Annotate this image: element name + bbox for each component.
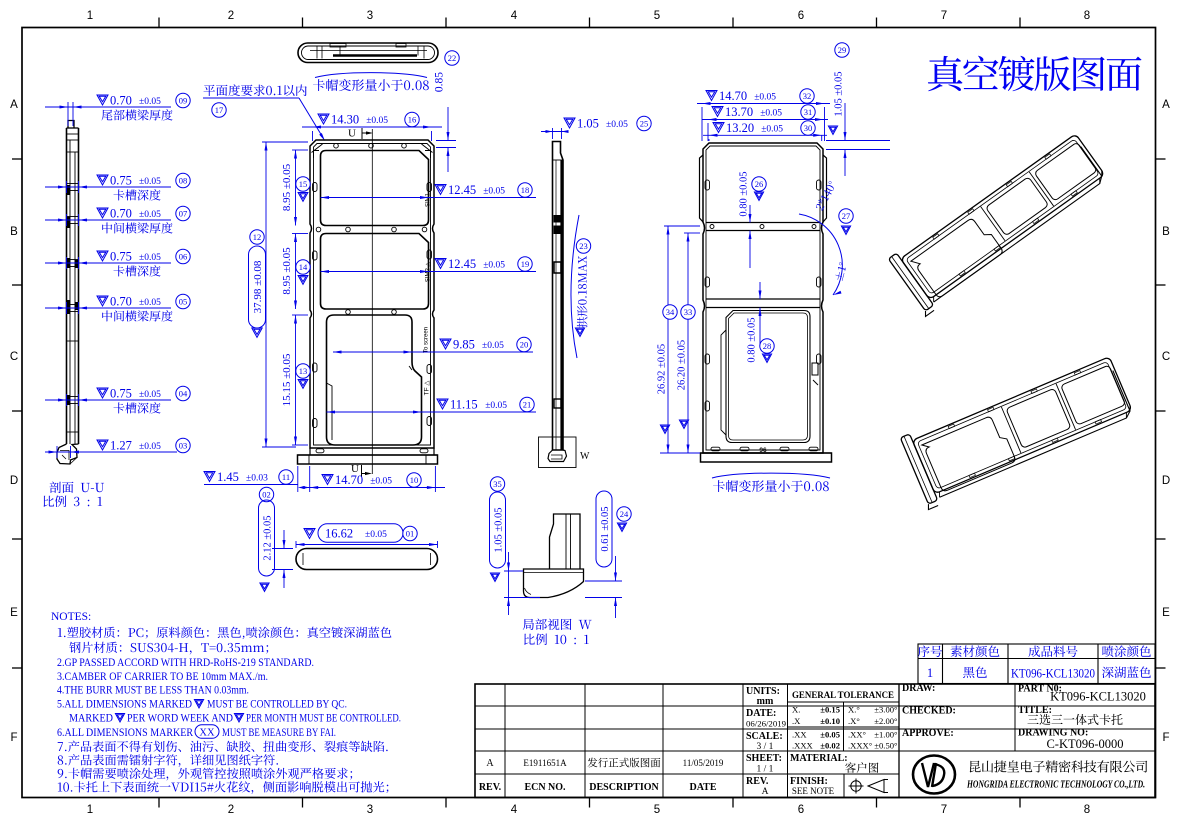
- svg-text:3 / 1: 3 / 1: [757, 742, 774, 752]
- svg-text:4: 4: [511, 804, 518, 816]
- svg-text:±0.05: ±0.05: [139, 298, 161, 308]
- svg-text:±0.10: ±0.10: [820, 716, 840, 726]
- svg-text:±3.00°: ±3.00°: [874, 705, 898, 715]
- svg-text:4: 4: [511, 10, 518, 22]
- svg-text:GENERAL TOLERANCE: GENERAL TOLERANCE: [792, 690, 894, 700]
- svg-text:26.20 ±0.05: 26.20 ±0.05: [677, 340, 688, 390]
- svg-text:08: 08: [179, 175, 188, 185]
- svg-text:14.70: 14.70: [335, 473, 363, 487]
- svg-text:35: 35: [493, 479, 502, 489]
- svg-text:8: 8: [1084, 804, 1090, 816]
- svg-text:1: 1: [927, 666, 933, 680]
- svg-text:±0.03: ±0.03: [246, 474, 268, 484]
- svg-text:21: 21: [523, 399, 532, 409]
- svg-text:.XX°: .XX°: [848, 730, 867, 740]
- svg-text:5.ALL DIMENSIONS MARKED: 5.ALL DIMENSIONS MARKED: [57, 699, 192, 711]
- svg-text:CHECKED:: CHECKED:: [902, 706, 956, 717]
- svg-text:±0.05: ±0.05: [139, 177, 161, 187]
- svg-text:±0.02: ±0.02: [820, 741, 840, 751]
- svg-text:B: B: [10, 226, 18, 238]
- svg-text:REV.: REV.: [746, 776, 769, 787]
- svg-text:±0.05: ±0.05: [139, 97, 161, 107]
- svg-text:±0.50°: ±0.50°: [874, 741, 898, 751]
- svg-text:5: 5: [654, 804, 660, 816]
- svg-text:±0.05: ±0.05: [139, 390, 161, 400]
- svg-text:SCALE:: SCALE:: [746, 731, 783, 742]
- svg-text:15: 15: [299, 179, 308, 189]
- svg-text:24: 24: [620, 509, 629, 519]
- svg-text:U: U: [348, 128, 356, 140]
- svg-text:0.70: 0.70: [110, 207, 132, 221]
- svg-text:29: 29: [838, 45, 847, 55]
- svg-text:06: 06: [179, 251, 188, 261]
- svg-text:C: C: [1162, 351, 1170, 363]
- svg-text:04: 04: [179, 388, 188, 398]
- svg-text:26: 26: [755, 179, 764, 189]
- svg-text:28: 28: [763, 341, 772, 351]
- svg-text:1 / 1: 1 / 1: [757, 765, 774, 775]
- svg-text:±0.05: ±0.05: [366, 116, 388, 126]
- svg-text:6: 6: [798, 804, 804, 816]
- svg-text:9.85: 9.85: [453, 338, 475, 352]
- svg-text:25: 25: [640, 118, 649, 128]
- svg-text:TF △: TF △: [424, 380, 431, 396]
- svg-text:.XX: .XX: [792, 730, 807, 740]
- svg-text:14.70: 14.70: [719, 89, 747, 103]
- svg-text:34: 34: [666, 307, 675, 317]
- svg-text:8.95 ±0.05: 8.95 ±0.05: [281, 163, 293, 211]
- svg-text:ECN NO.: ECN NO.: [524, 782, 566, 793]
- svg-text:C: C: [10, 351, 18, 363]
- svg-text:4.THE BURR MUST BE LESS THAN 0: 4.THE BURR MUST BE LESS THAN 0.03mm.: [57, 685, 249, 697]
- svg-text:F: F: [1162, 732, 1169, 744]
- svg-text:DATE: DATE: [689, 782, 716, 793]
- svg-text:±0.05: ±0.05: [606, 120, 628, 130]
- svg-text:±2.00°: ±2.00°: [874, 716, 898, 726]
- svg-text:07: 07: [179, 208, 188, 218]
- svg-text:17: 17: [215, 105, 224, 115]
- svg-text:To screen: To screen: [424, 327, 430, 353]
- svg-text:MUST BE CONTROLLED BY QC.: MUST BE CONTROLLED BY QC.: [207, 699, 347, 711]
- svg-text:X.°: X.°: [848, 705, 860, 715]
- svg-text:0.70: 0.70: [110, 94, 132, 108]
- svg-text:±0.05: ±0.05: [820, 730, 840, 740]
- svg-text:30: 30: [804, 123, 813, 133]
- svg-text:±0.05: ±0.05: [370, 477, 392, 487]
- svg-text:W: W: [580, 451, 590, 462]
- svg-text:1.05 ±0.05: 1.05 ±0.05: [834, 71, 845, 116]
- svg-text:D: D: [10, 475, 18, 487]
- svg-text:5: 5: [654, 10, 660, 22]
- svg-text:33: 33: [684, 307, 693, 317]
- svg-text:±0.05: ±0.05: [365, 530, 387, 540]
- svg-text:E: E: [10, 607, 18, 619]
- svg-text:0.85: 0.85: [433, 72, 445, 92]
- svg-text:10: 10: [410, 475, 419, 485]
- svg-text:2: 2: [228, 10, 234, 22]
- svg-text:DATE:: DATE:: [746, 708, 776, 719]
- svg-text:±0.05: ±0.05: [139, 442, 161, 452]
- svg-text:3.CAMBER OF CARRIER TO BE 10mm: 3.CAMBER OF CARRIER TO BE 10mm MAX./m.: [57, 671, 268, 683]
- svg-text:11.15: 11.15: [450, 398, 478, 412]
- svg-text:SIM1: SIM1: [426, 192, 432, 207]
- svg-text:22: 22: [448, 53, 457, 63]
- svg-text:96: 96: [759, 447, 767, 454]
- svg-text:1: 1: [87, 804, 93, 816]
- svg-text:6.ALL DIMENSIONS MARKER: 6.ALL DIMENSIONS MARKER: [57, 727, 193, 739]
- svg-text:19: 19: [521, 259, 530, 269]
- svg-text:mm: mm: [757, 696, 774, 707]
- svg-text:±1.00°: ±1.00°: [874, 730, 898, 740]
- svg-text:16.62: 16.62: [325, 527, 353, 541]
- svg-text:MARKED: MARKED: [69, 713, 113, 725]
- svg-text:X.: X.: [792, 705, 800, 715]
- svg-text:12.45: 12.45: [448, 183, 476, 197]
- svg-text:7: 7: [941, 10, 947, 22]
- svg-text:27: 27: [842, 211, 851, 221]
- svg-text:0.61 ±0.05: 0.61 ±0.05: [600, 506, 611, 551]
- svg-text:DESCRIPTION: DESCRIPTION: [589, 782, 659, 793]
- svg-text:14: 14: [299, 262, 308, 272]
- svg-text:0.80 ±0.05: 0.80 ±0.05: [747, 317, 758, 362]
- svg-text:1: 1: [87, 10, 93, 22]
- svg-text:±0.05: ±0.05: [483, 187, 505, 197]
- svg-text:14.30: 14.30: [331, 113, 359, 127]
- svg-text:13.20: 13.20: [726, 121, 754, 135]
- svg-text:3: 3: [367, 10, 373, 22]
- svg-text:KT096-KCL13020: KT096-KCL13020: [1011, 667, 1095, 681]
- svg-text:±0.05: ±0.05: [483, 261, 505, 271]
- svg-text:D: D: [1162, 475, 1170, 487]
- svg-text:.XXX°: .XXX°: [848, 741, 873, 751]
- svg-text:.X: .X: [792, 716, 801, 726]
- svg-text:8: 8: [1084, 10, 1090, 22]
- svg-text:.XXX: .XXX: [792, 741, 814, 751]
- svg-text:±0.15: ±0.15: [820, 705, 840, 715]
- svg-text:E1911651A: E1911651A: [523, 758, 567, 768]
- svg-text:12.45: 12.45: [448, 257, 476, 271]
- svg-text:26.92 ±0.05: 26.92 ±0.05: [657, 344, 668, 394]
- svg-text:A: A: [486, 758, 494, 769]
- svg-text:02: 02: [262, 489, 271, 499]
- svg-text:±0.05: ±0.05: [139, 253, 161, 263]
- svg-text:16: 16: [408, 114, 417, 124]
- svg-text:31: 31: [804, 107, 813, 117]
- svg-text:13.70: 13.70: [725, 105, 753, 119]
- svg-text:B: B: [1162, 226, 1170, 238]
- svg-text:0.75: 0.75: [110, 174, 132, 188]
- svg-text:C-KT096-0000: C-KT096-0000: [1046, 737, 1123, 751]
- svg-text:2.GP PASSED ACCORD WITH HRD-Ro: 2.GP PASSED ACCORD WITH HRD-RoHS-219 STA…: [57, 657, 314, 669]
- svg-text:NOTES:: NOTES:: [51, 611, 91, 623]
- svg-text:0.75: 0.75: [110, 250, 132, 264]
- svg-text:A: A: [1162, 99, 1170, 111]
- svg-text:A: A: [762, 787, 769, 797]
- svg-text:DRAW:: DRAW:: [902, 683, 935, 694]
- svg-text:2: 2: [228, 804, 234, 816]
- svg-text:2.12 ±0.05: 2.12 ±0.05: [263, 515, 274, 560]
- svg-text:MATERIAL:: MATERIAL:: [790, 753, 848, 764]
- svg-text:11: 11: [282, 472, 290, 482]
- svg-text:.X°: .X°: [848, 716, 860, 726]
- svg-text:13: 13: [299, 366, 308, 376]
- svg-text:1.45: 1.45: [217, 470, 239, 484]
- svg-text:MUST BE MEASURE BY FAI.: MUST BE MEASURE BY FAI.: [222, 727, 336, 739]
- svg-text:APPROVE:: APPROVE:: [902, 728, 954, 739]
- svg-text:32: 32: [803, 91, 812, 101]
- svg-text:18: 18: [521, 185, 530, 195]
- svg-text:A: A: [10, 99, 18, 111]
- svg-text:03: 03: [179, 440, 188, 450]
- svg-text:REV.: REV.: [479, 782, 502, 793]
- svg-text:09: 09: [179, 95, 188, 105]
- svg-text:PER MONTH MUST BE CONTROLLED.: PER MONTH MUST BE CONTROLLED.: [246, 713, 401, 725]
- svg-text:SEE NOTE: SEE NOTE: [792, 786, 835, 796]
- svg-text:PER WORD WEEK AND: PER WORD WEEK AND: [127, 713, 233, 725]
- svg-text:1.27: 1.27: [110, 439, 132, 453]
- svg-text:05: 05: [179, 296, 188, 306]
- svg-text:6: 6: [798, 10, 804, 22]
- svg-text:3: 3: [367, 804, 373, 816]
- svg-text:7: 7: [941, 804, 947, 816]
- svg-text:XX: XX: [199, 728, 215, 739]
- svg-text:0.75: 0.75: [110, 387, 132, 401]
- svg-text:1.05 ±0.05: 1.05 ±0.05: [494, 507, 505, 552]
- svg-text:SHEET:: SHEET:: [746, 753, 782, 764]
- svg-text:37.98 ±0.08: 37.98 ±0.08: [252, 260, 264, 313]
- svg-text:06/26/2019: 06/26/2019: [746, 719, 787, 729]
- svg-text:±0.05: ±0.05: [485, 401, 507, 411]
- svg-text:23: 23: [579, 241, 588, 251]
- svg-text:KT096-KCL13020: KT096-KCL13020: [1050, 690, 1146, 704]
- svg-text:8.95 ±0.05: 8.95 ±0.05: [281, 247, 293, 295]
- svg-text:F: F: [10, 732, 17, 744]
- svg-text:20: 20: [520, 339, 529, 349]
- svg-text:E: E: [1162, 607, 1170, 619]
- svg-text:12: 12: [253, 232, 262, 242]
- svg-text:±0.05: ±0.05: [754, 93, 776, 103]
- svg-text:01: 01: [406, 528, 415, 538]
- svg-text:±0.05: ±0.05: [482, 341, 504, 351]
- svg-text:1.05: 1.05: [577, 117, 599, 131]
- svg-text:±0.05: ±0.05: [139, 210, 161, 220]
- svg-text:HONGRIDA ELECTRONIC TECHNOLOGY: HONGRIDA ELECTRONIC TECHNOLOGY CO.,LTD.: [966, 780, 1145, 791]
- svg-text:11/05/2019: 11/05/2019: [683, 758, 724, 768]
- svg-text:±0.05: ±0.05: [761, 125, 783, 135]
- svg-text:0.70: 0.70: [110, 295, 132, 309]
- svg-text:15.15 ±0.05: 15.15 ±0.05: [281, 353, 293, 406]
- svg-text:0.80 ±0.05: 0.80 ±0.05: [739, 171, 750, 216]
- svg-text:±0.05: ±0.05: [760, 109, 782, 119]
